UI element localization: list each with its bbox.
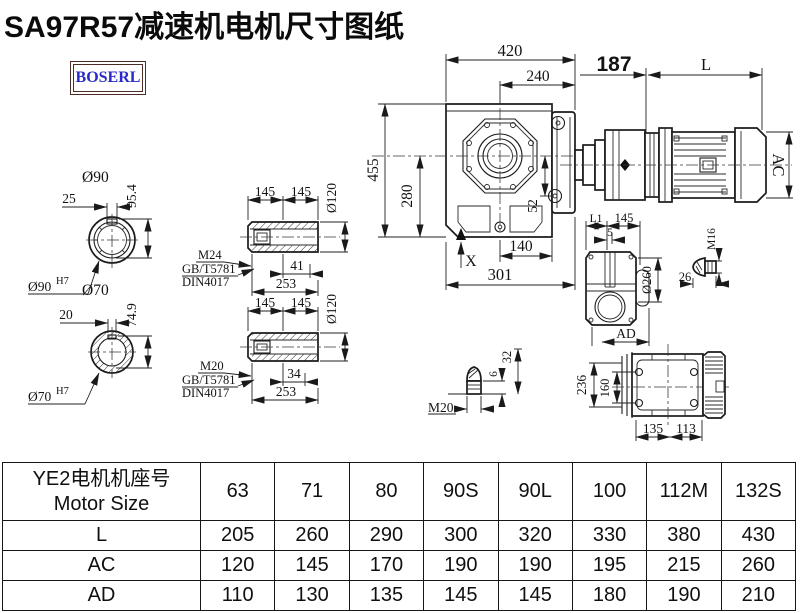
value-cell: 110 bbox=[201, 581, 275, 611]
dim-label-bore70: Ø70 bbox=[28, 389, 51, 404]
dim-label-bore70-sup: H7 bbox=[56, 386, 69, 397]
value-cell: 190 bbox=[498, 551, 572, 581]
dim-label-280: 280 bbox=[399, 184, 416, 208]
hollow-shaft-section-bottom: 145 145 Ø120 34 253 M20 GB/T5781 DIN4017 bbox=[182, 294, 348, 404]
dim-label-dia260: Ø260 bbox=[640, 266, 654, 294]
shaft-end-view-90: Ø90 25 95.4 Ø90 H7 bbox=[28, 169, 152, 294]
value-cell: 180 bbox=[572, 581, 646, 611]
value-cell: 205 bbox=[201, 521, 275, 551]
dim-label-X: X bbox=[465, 253, 476, 270]
motor-size-header-line: Motor Size bbox=[3, 492, 200, 517]
dim-label-145b: 145 bbox=[291, 184, 312, 199]
dim-label-135: 135 bbox=[643, 421, 664, 436]
table-data-row: L205260290300320330380430 bbox=[3, 521, 796, 551]
dim-label-25: 25 bbox=[62, 191, 76, 206]
value-cell: 170 bbox=[349, 551, 423, 581]
dim-label-L: L bbox=[701, 55, 711, 74]
size-header-cell: 71 bbox=[275, 463, 349, 521]
dim-label-dia90: Ø90 bbox=[82, 169, 109, 186]
dim-label-26: 26 bbox=[679, 270, 692, 284]
bottom-view: 236 160 135 113 bbox=[574, 344, 732, 441]
size-header-cell: 90L bbox=[498, 463, 572, 521]
value-cell: 135 bbox=[349, 581, 423, 611]
dim-label-32: 32 bbox=[500, 351, 514, 364]
dim-label-41: 41 bbox=[290, 258, 304, 273]
table-header-row: YE2电机机座号Motor Size63718090S90L100112M132… bbox=[3, 463, 796, 521]
row-label-cell: AD bbox=[3, 581, 201, 611]
size-header-cell: 132S bbox=[721, 463, 795, 521]
size-header-cell: 90S bbox=[424, 463, 498, 521]
dim-label-140: 140 bbox=[509, 238, 533, 255]
brand-logo: BOSERL bbox=[70, 61, 146, 95]
dim-label-145e: 145 bbox=[615, 211, 634, 225]
dim-label-95-4: 95.4 bbox=[124, 184, 139, 208]
side-view: L1 145 5 Ø260 AD bbox=[586, 211, 662, 346]
page-title: SA97R57减速机电机尺寸图纸 bbox=[4, 2, 404, 46]
dim-label-253b: 253 bbox=[276, 384, 297, 399]
dim-label-420: 420 bbox=[498, 41, 523, 60]
value-cell: 130 bbox=[275, 581, 349, 611]
value-cell: 145 bbox=[275, 551, 349, 581]
value-cell: 260 bbox=[721, 551, 795, 581]
std-label-gbt-a: GB/T5781 bbox=[182, 262, 235, 276]
hollow-shaft-section-top: 145 145 Ø120 41 253 M24 GB/T5781 DIN4017 bbox=[182, 183, 348, 296]
dim-label-301: 301 bbox=[488, 265, 513, 284]
value-cell: 145 bbox=[424, 581, 498, 611]
dim-label-113: 113 bbox=[676, 421, 696, 436]
value-cell: 290 bbox=[349, 521, 423, 551]
value-cell: 190 bbox=[424, 551, 498, 581]
dim-label-M16: M16 bbox=[706, 228, 718, 250]
value-cell: 195 bbox=[572, 551, 646, 581]
value-cell: 330 bbox=[572, 521, 646, 551]
dim-label-M20: M20 bbox=[428, 400, 454, 415]
thread-label-M24: M24 bbox=[198, 248, 222, 262]
size-header-cell: 80 bbox=[349, 463, 423, 521]
motor-assembly: AC bbox=[560, 128, 793, 202]
value-cell: 320 bbox=[498, 521, 572, 551]
dim-label-145d: 145 bbox=[291, 295, 312, 310]
dim-label-253a: 253 bbox=[276, 276, 297, 291]
dim-label-240: 240 bbox=[526, 68, 550, 85]
value-cell: 120 bbox=[201, 551, 275, 581]
dim-label-455: 455 bbox=[365, 158, 382, 182]
std-label-din-b: DIN4017 bbox=[182, 386, 229, 400]
size-header-cell: 112M bbox=[647, 463, 721, 521]
dim-label-34: 34 bbox=[287, 366, 301, 381]
std-label-din-a: DIN4017 bbox=[182, 275, 229, 289]
dim-label-145c: 145 bbox=[255, 295, 276, 310]
page: 420 240 187 L 455 280 52 140 X bbox=[0, 0, 800, 613]
value-cell: 145 bbox=[498, 581, 572, 611]
front-view bbox=[372, 104, 578, 240]
dim-label-6: 6 bbox=[488, 371, 500, 377]
value-cell: 380 bbox=[647, 521, 721, 551]
value-cell: 260 bbox=[275, 521, 349, 551]
dim-label-AC: AC bbox=[769, 154, 788, 177]
row-label-cell: L bbox=[3, 521, 201, 551]
dim-label-dia120b: Ø120 bbox=[324, 294, 339, 324]
dim-label-145a: 145 bbox=[255, 184, 276, 199]
dim-label-L1: L1 bbox=[590, 213, 603, 225]
spec-table-body: YE2电机机座号Motor Size63718090S90L100112M132… bbox=[3, 463, 796, 611]
m16-bolt-detail: M16 26 bbox=[679, 228, 727, 288]
std-label-gbt-b: GB/T5781 bbox=[182, 373, 235, 387]
motor-size-table: YE2电机机座号Motor Size63718090S90L100112M132… bbox=[2, 462, 796, 611]
dim-label-74-9: 74.9 bbox=[124, 303, 139, 327]
table-data-row: AD110130135145145180190210 bbox=[3, 581, 796, 611]
dim-label-dia70: Ø70 bbox=[82, 282, 109, 299]
dim-label-5: 5 bbox=[607, 227, 613, 239]
size-header-cell: 63 bbox=[201, 463, 275, 521]
dim-label-AD: AD bbox=[616, 326, 636, 341]
motor-size-header: YE2电机机座号Motor Size bbox=[3, 463, 201, 521]
brand-logo-text: BOSERL bbox=[76, 69, 141, 87]
m20-bolt-detail: 6 32 M20 bbox=[428, 349, 522, 415]
dim-label-52: 52 bbox=[525, 199, 540, 213]
shaft-end-view-70: Ø70 20 74.9 Ø70 H7 bbox=[28, 282, 152, 404]
row-label-cell: AC bbox=[3, 551, 201, 581]
value-cell: 190 bbox=[647, 581, 721, 611]
value-cell: 215 bbox=[647, 551, 721, 581]
table-data-row: AC120145170190190195215260 bbox=[3, 551, 796, 581]
thread-label-M20: M20 bbox=[200, 359, 224, 373]
dim-label-236: 236 bbox=[574, 375, 589, 396]
dim-label-bore90-sup: H7 bbox=[56, 276, 69, 287]
value-cell: 430 bbox=[721, 521, 795, 551]
value-cell: 210 bbox=[721, 581, 795, 611]
dim-label-187: 187 bbox=[596, 53, 631, 76]
motor-size-header-line: YE2电机机座号 bbox=[3, 467, 200, 492]
value-cell: 300 bbox=[424, 521, 498, 551]
dim-label-bore90: Ø90 bbox=[28, 279, 51, 294]
size-header-cell: 100 bbox=[572, 463, 646, 521]
dim-label-dia120a: Ø120 bbox=[324, 183, 339, 213]
dim-label-160: 160 bbox=[598, 379, 612, 398]
dim-label-20: 20 bbox=[59, 307, 73, 322]
